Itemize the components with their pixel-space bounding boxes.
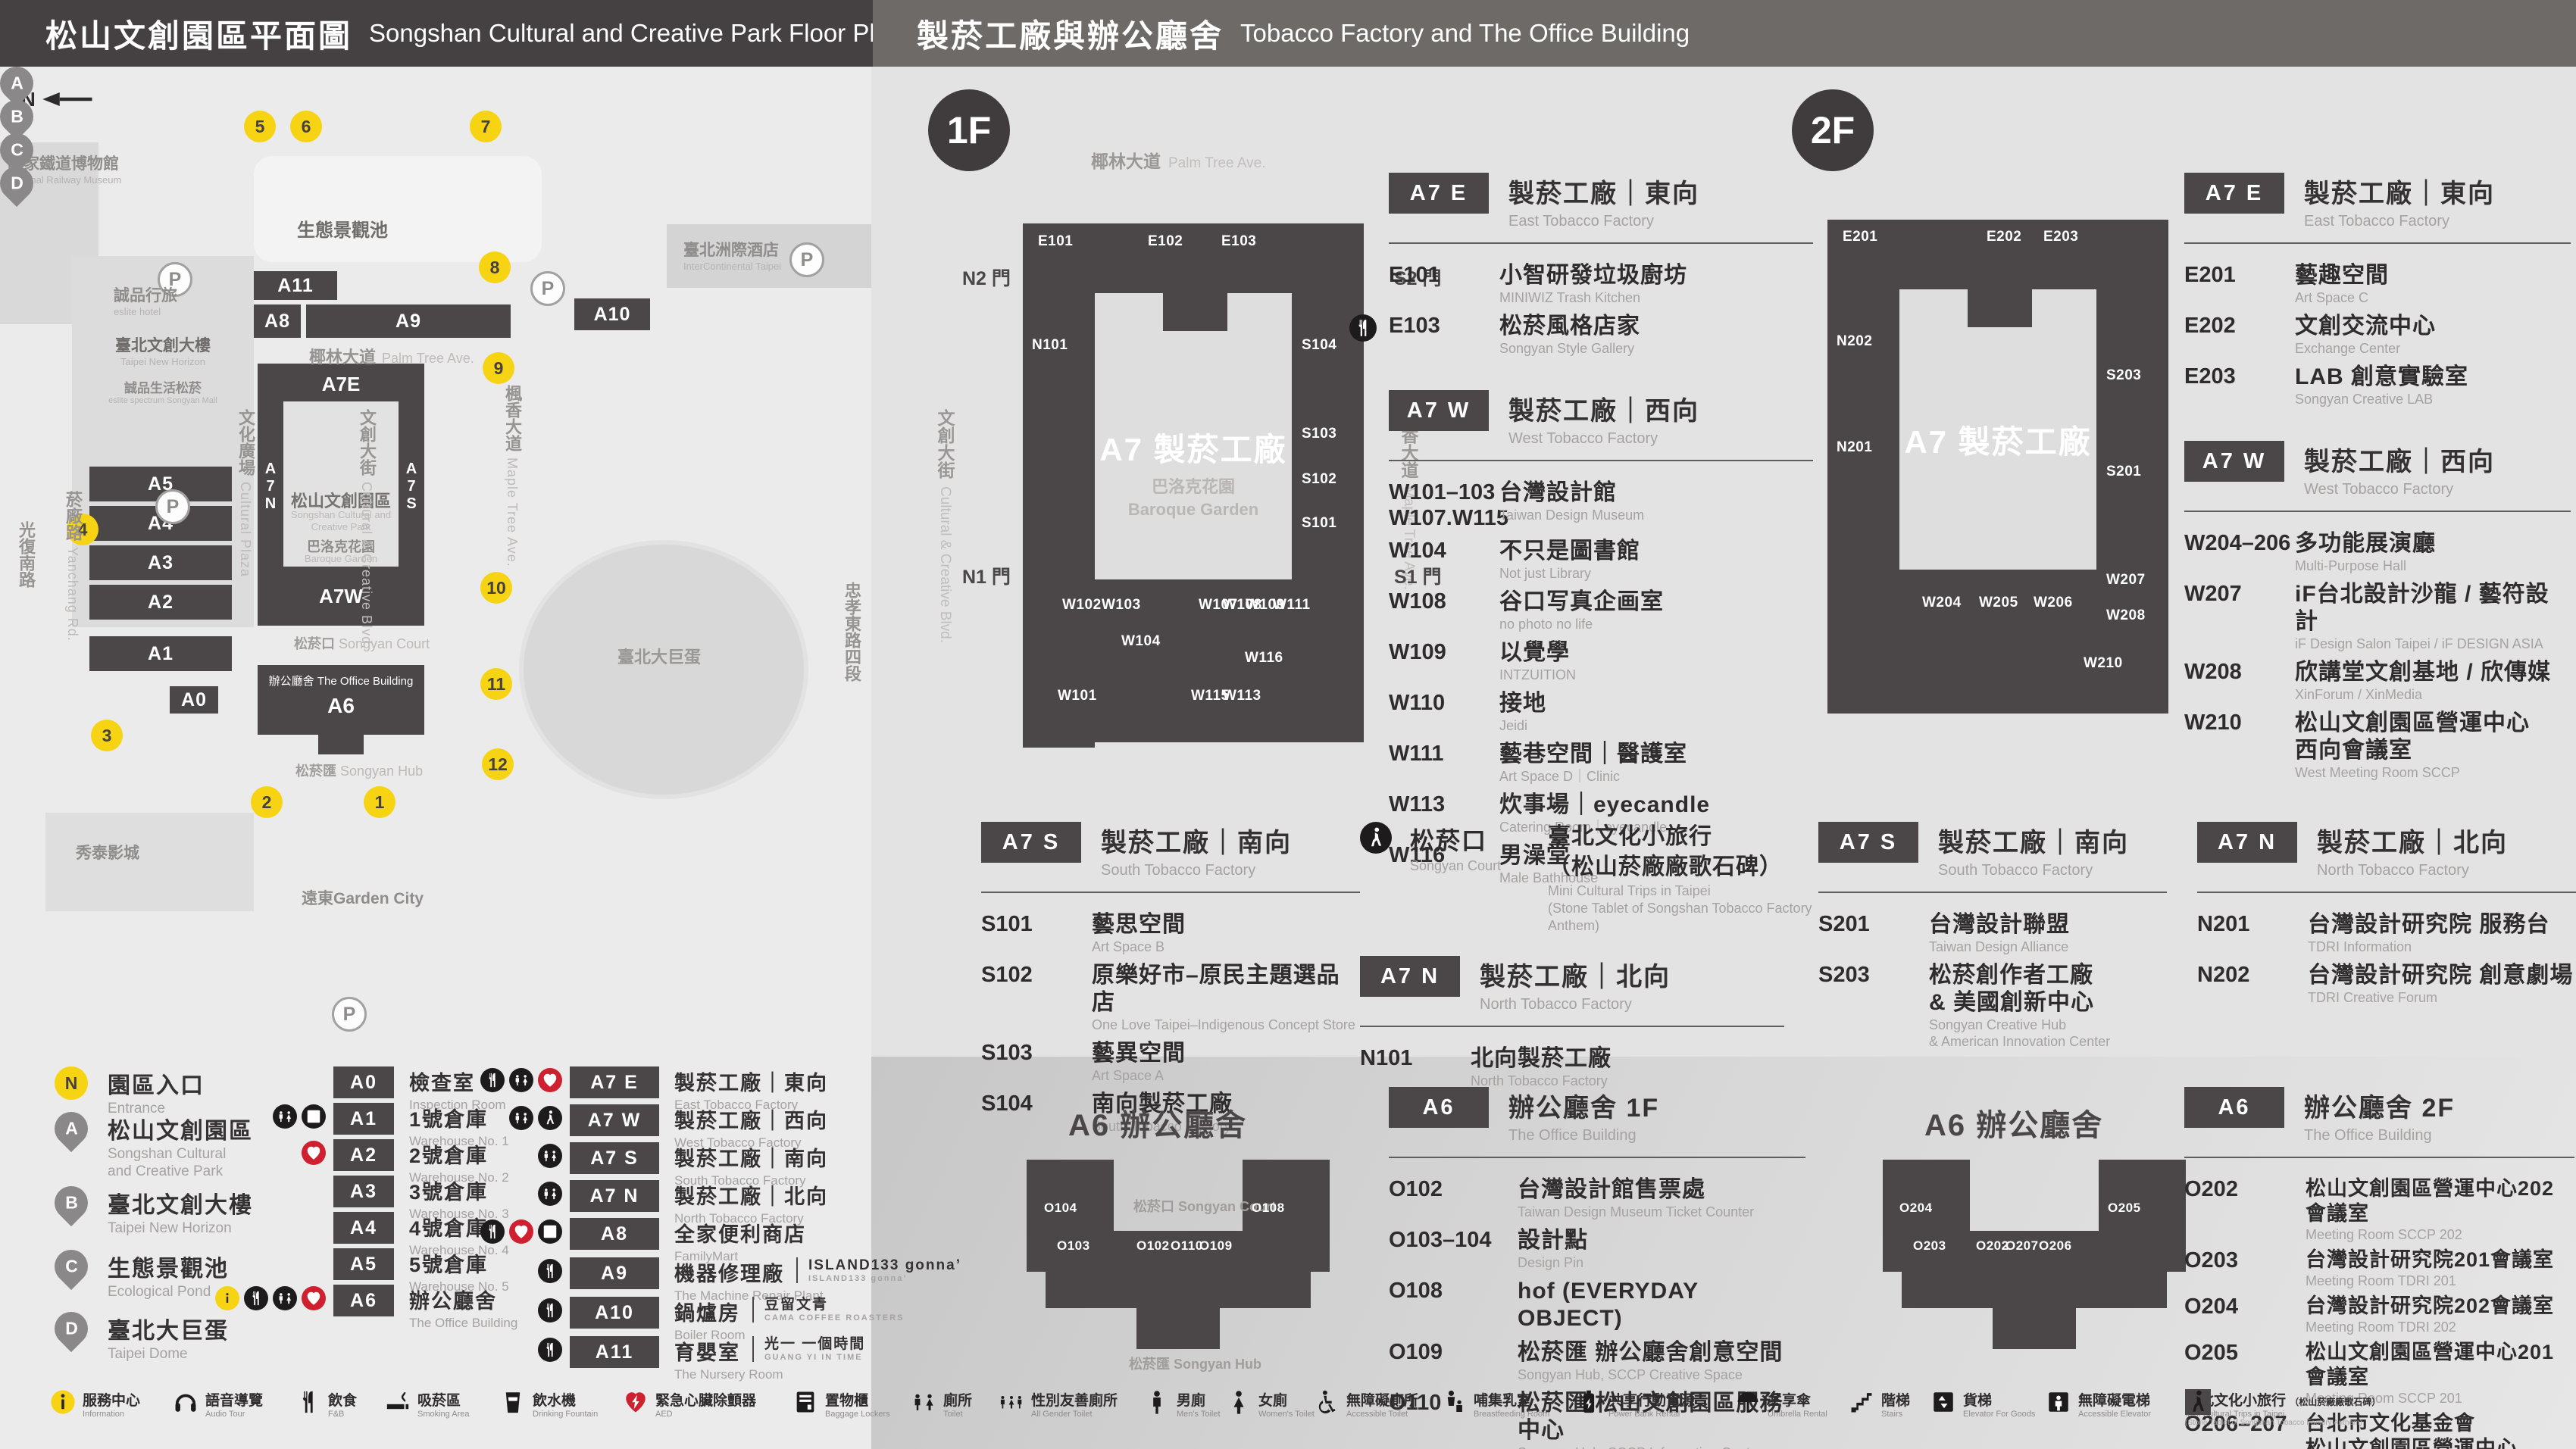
section-badge: A7 E bbox=[2184, 173, 2284, 214]
room-label: E101 bbox=[1038, 233, 1073, 250]
room-label: O109 bbox=[1199, 1238, 1233, 1254]
trip-icon bbox=[2185, 1389, 2211, 1415]
facility-legend-item: 吸菸區 Smoking Area bbox=[385, 1389, 469, 1419]
room-label: O108 bbox=[1252, 1201, 1285, 1216]
room-list-item: O204 台灣設計研究院202會議室 Meeting Room TDRI 202 bbox=[2184, 1294, 2574, 1335]
room-list-item: E101 小智研發垃圾廚坊 MINIWIZ Trash Kitchen bbox=[1389, 262, 1813, 306]
fnb-icon bbox=[480, 1068, 505, 1092]
room-label: W205 bbox=[1979, 595, 2018, 611]
section-a7e-2f: A7 E 製菸工廠｜東向East Tobacco Factory E201 藝趣… bbox=[2184, 173, 2571, 408]
room-label: O110 bbox=[1171, 1238, 1203, 1254]
room-label: E203 bbox=[2043, 229, 2078, 245]
map-building-block: A1 bbox=[89, 636, 232, 671]
left-header-title-en: Songshan Cultural and Creative Park Floo… bbox=[369, 19, 902, 48]
list-column-2f: A7 E 製菸工廠｜東向East Tobacco Factory E201 藝趣… bbox=[2184, 173, 2571, 814]
road-label: 文化廣場Cultural Plaza bbox=[233, 409, 258, 577]
taipei-dome-label: 臺北大巨蛋 bbox=[576, 644, 742, 668]
room-label: W208 bbox=[2106, 607, 2146, 624]
taipei-dome-shape bbox=[519, 540, 808, 799]
new-horizon-label: 臺北文創大樓 Taipei New Horizon bbox=[91, 333, 235, 367]
map-building-block: A8 bbox=[254, 304, 301, 338]
eslite-mall-label: 誠品生活松菸 eslite spectrum Songyan Mall bbox=[91, 377, 235, 405]
accessible-icon bbox=[1314, 1389, 1340, 1415]
plan1f-road-left: 文創大街Cultural & Creative Blvd. bbox=[932, 409, 958, 643]
umbrella-icon bbox=[1735, 1389, 1761, 1415]
room-label: O203 bbox=[1913, 1238, 1946, 1254]
section-a7e-1f: A7 E 製菸工廠｜東向East Tobacco Factory E101 小智… bbox=[1389, 173, 1813, 357]
room-label: O104 bbox=[1044, 1201, 1077, 1216]
office-building-1f-plan: A6 辦公廳舍 松菸口 Songyan Court 松菸匯 Songyan Hu… bbox=[985, 1087, 1371, 1367]
facility-legend-item: 性別友善廁所 All Gender Toilet bbox=[999, 1389, 1118, 1419]
legend-place-row: D 臺北大巨蛋Taipei Dome bbox=[55, 1312, 229, 1363]
facility-legend-item: 哺集乳室 Breastfeeding Room bbox=[1441, 1389, 1549, 1419]
tobacco-factory-1f-plan: 椰林大道Palm Tree Ave. 文創大街Cultural & Creati… bbox=[1023, 182, 1364, 780]
entrance-gate-marker: 9 bbox=[483, 352, 514, 384]
room-list-item: E203 LAB 創意實驗室Songyan Creative LAB bbox=[2184, 364, 2571, 408]
map-building-block: A2 bbox=[89, 585, 232, 620]
legend-badge: A5 bbox=[333, 1248, 394, 1280]
pond-label: 生態景觀池 bbox=[267, 215, 418, 242]
left-header-title-zh: 松山文創園區平面圖 bbox=[45, 11, 352, 57]
list-column-1f: A7 E 製菸工廠｜東向East Tobacco Factory E101 小智… bbox=[1389, 173, 1813, 920]
room-label: O206 bbox=[2039, 1238, 2072, 1254]
room-label: W210 bbox=[2084, 655, 2123, 672]
locker-icon bbox=[792, 1389, 818, 1415]
room-list-item: W111 藝巷空間｜醫護室 Art Space D｜Clinic bbox=[1389, 741, 1813, 785]
room-list-item: O202 松山文創園區營運中心202會議室 Meeting Room SCCP … bbox=[2184, 1176, 2574, 1243]
goods-elevator-icon bbox=[538, 1219, 562, 1244]
room-label: W103 bbox=[1102, 597, 1141, 614]
trip-icon bbox=[538, 1106, 562, 1130]
room-list-item: W210 松山文創園區營運中心西向會議室 West Meeting Room S… bbox=[2184, 710, 2571, 781]
aed-icon bbox=[623, 1389, 649, 1415]
map-park-name-en: Songshan Cultural and Creative Park bbox=[267, 509, 415, 533]
floor-1f-badge: 1F bbox=[928, 89, 1010, 171]
partner-brand: 光一 一個時間GUANG YI IN TIME bbox=[752, 1336, 865, 1362]
landmark-label: 臺北洲際酒店InterContinental Taipei bbox=[683, 238, 781, 272]
room-label: O202 bbox=[1976, 1238, 2009, 1254]
room-list-item: O102 台灣設計館售票處Taiwan Design Museum Ticket… bbox=[1389, 1176, 1805, 1220]
legend-place-symbol: N bbox=[55, 1066, 88, 1100]
aed-icon bbox=[509, 1219, 533, 1244]
room-label: E103 bbox=[1221, 233, 1256, 250]
audio-icon bbox=[173, 1389, 199, 1415]
facility-legend-item: 共享行動電源 Power Bank Rental bbox=[1576, 1389, 1695, 1419]
toilet-icon bbox=[273, 1286, 297, 1310]
legend-badge: A7 W bbox=[570, 1104, 659, 1136]
room-label: N201 bbox=[1837, 439, 1872, 456]
right-header-title-zh: 製菸工廠與辦公廳舍 bbox=[917, 11, 1224, 57]
powerbank-icon bbox=[1576, 1389, 1602, 1415]
a6-stem-shape bbox=[318, 735, 364, 754]
room-list-item: S103 藝異空間Art Space A bbox=[981, 1040, 1360, 1084]
entrance-gate-marker: 3 bbox=[91, 720, 123, 751]
facility-legend-item: 無障礙電梯 Accessible Elevator bbox=[2046, 1389, 2151, 1419]
room-list-item: N202 台灣設計研究院 創意劇場TDRI Creative Forum bbox=[2197, 962, 2576, 1006]
road-label: 文創大街Cultural & Creative Blvd. bbox=[355, 409, 379, 649]
section-badge: A6 bbox=[1389, 1087, 1489, 1128]
room-label: E102 bbox=[1148, 233, 1183, 250]
section-badge: A7 N bbox=[1360, 956, 1460, 997]
tobacco-factory-2f-plan: A7 製菸工廠 E201E202E203N202N201S203S201W204… bbox=[1827, 182, 2168, 742]
goods-elevator-icon bbox=[1930, 1389, 1956, 1415]
info-icon bbox=[215, 1286, 239, 1310]
room-list-item: O109 松菸匯 辦公廳舍創意空間Songyan Hub, SCCP Creat… bbox=[1389, 1339, 1805, 1383]
map-building-block: A11 bbox=[254, 271, 337, 300]
parking-icon: P bbox=[789, 242, 824, 277]
room-label: N101 bbox=[1032, 337, 1068, 354]
entrance-gate-marker: 2 bbox=[251, 786, 283, 818]
section-a7n-1f: A7 N 製菸工廠｜北向North Tobacco Factory N101 北… bbox=[1360, 956, 1784, 1096]
facility-legend-item: 女廁 Women's Toilet bbox=[1226, 1389, 1315, 1419]
water-icon bbox=[500, 1389, 526, 1415]
toilet-icon bbox=[273, 1104, 297, 1129]
road-label: 光復南路 bbox=[14, 521, 38, 588]
stairs-icon bbox=[1849, 1389, 1874, 1415]
entrance-gate-marker: 7 bbox=[470, 111, 502, 142]
legend-badge: A1 bbox=[333, 1103, 394, 1135]
room-list-item: W110 接地 Jeidi bbox=[1389, 690, 1813, 734]
legend-badge: A8 bbox=[570, 1218, 659, 1250]
right-header: 製菸工廠與辦公廳舍 Tobacco Factory and The Office… bbox=[873, 0, 2576, 67]
room-label: W204 bbox=[1922, 595, 1962, 611]
map-a6-office-label: 辦公廳舍 The Office Building bbox=[258, 673, 424, 689]
entrance-gate-marker: 6 bbox=[290, 111, 322, 142]
ecological-pond bbox=[254, 156, 542, 262]
map-building-block: A0 bbox=[170, 686, 218, 714]
landmark-label: 遠東Garden City bbox=[302, 886, 424, 909]
office-building-2f-plan: A6 辦公廳舍 O204O203O202O207O206O205 bbox=[1852, 1087, 2216, 1367]
section-badge: A7 W bbox=[1389, 390, 1489, 431]
entrance-gate-marker: 8 bbox=[479, 251, 511, 283]
entrance-gate-marker: 10 bbox=[480, 572, 512, 604]
legend-badge: A4 bbox=[333, 1212, 394, 1244]
room-label: S102 bbox=[1302, 471, 1336, 488]
parking-icon: P bbox=[530, 271, 565, 306]
toilet-icon bbox=[538, 1182, 562, 1206]
floor-plan-poster: 松山文創園區平面圖 Songshan Cultural and Creative… bbox=[0, 0, 2576, 1449]
goods-elevator-icon bbox=[302, 1104, 326, 1129]
legend-place-row: C 生態景觀池Ecological Pond bbox=[55, 1250, 229, 1301]
landmark-label: 秀泰影城 bbox=[76, 841, 139, 863]
legend-place-symbol: D bbox=[48, 1305, 95, 1352]
left-header: 松山文創園區平面圖 Songshan Cultural and Creative… bbox=[0, 0, 907, 67]
room-list-item: S201 台灣設計聯盟 Taiwan Design Alliance bbox=[1818, 911, 2167, 955]
room-label: O207 bbox=[2005, 1238, 2039, 1254]
room-list-item: W101–103W107.W115 台灣設計館 Taiwan Design Mu… bbox=[1389, 479, 1813, 531]
map-garden-en: Baroque Garden bbox=[267, 553, 415, 564]
section-badge: A7 S bbox=[981, 822, 1081, 863]
facility-legend-item: 貨梯 Elevator For Goods bbox=[1930, 1389, 2035, 1419]
entrance-gate-marker: 1 bbox=[364, 786, 395, 818]
room-list-item: N201 台灣設計研究院 服務台TDRI Information bbox=[2197, 911, 2576, 955]
men-icon bbox=[1144, 1389, 1170, 1415]
map-a7w-label: A7W bbox=[258, 585, 424, 608]
map-hub-label: 松菸匯 Songyan Hub bbox=[295, 760, 423, 780]
allgender-icon bbox=[999, 1389, 1024, 1415]
section-badge: A7 N bbox=[2197, 822, 2297, 863]
aed-icon bbox=[538, 1068, 562, 1092]
section-badge: A6 bbox=[2184, 1087, 2284, 1128]
room-label: W101 bbox=[1058, 688, 1097, 704]
plan1f-center-label: A7 製菸工廠 bbox=[1095, 424, 1292, 470]
parking-icon: P bbox=[155, 489, 190, 524]
room-label: O205 bbox=[2108, 1201, 2141, 1216]
aed-icon bbox=[302, 1286, 326, 1310]
map-a6-label: A6 bbox=[258, 694, 424, 718]
toilet-icon bbox=[538, 1144, 562, 1168]
room-list-item: S102 原樂好市–原民主題選品店One Love Taipei–Indigen… bbox=[981, 962, 1360, 1033]
legend-badge: A7 S bbox=[570, 1142, 659, 1174]
a6-1f-plan-title: A6 辦公廳舍 bbox=[1068, 1101, 1247, 1145]
facility-legend-item: 緊急心臟除顫器 AED bbox=[623, 1389, 756, 1419]
legend-badge: A2 bbox=[333, 1139, 394, 1171]
legend-badge: A10 bbox=[570, 1297, 659, 1329]
room-label: O102 bbox=[1136, 1238, 1170, 1254]
fnb-icon bbox=[538, 1298, 562, 1323]
facility-legend-item: 廁所 Toilet bbox=[911, 1389, 972, 1419]
facility-legend-item: 臺北文化小旅行 （松山菸廠廠歌石碑） Mini Cultural Trips i… bbox=[2185, 1389, 2381, 1427]
partner-brand: ISLAND133 gonna’ISLAND133 gonna’ bbox=[796, 1257, 961, 1283]
partner-brand: 豆留文青CAMA COFFEE ROASTERS bbox=[752, 1297, 904, 1323]
legend-badge: A3 bbox=[333, 1176, 394, 1207]
section-a7n-2f: A7 N 製菸工廠｜北向North Tobacco Factory N201 台… bbox=[2197, 822, 2576, 1013]
legend-badge: A9 bbox=[570, 1257, 659, 1289]
room-list-item: S203 松菸創作者工廠& 美國創新中心 Songyan Creative Hu… bbox=[1818, 962, 2167, 1050]
facility-legend-item: 階梯 Stairs bbox=[1849, 1389, 1910, 1419]
room-label: W113 bbox=[1223, 688, 1261, 704]
toilet-icon bbox=[509, 1106, 533, 1130]
room-label: E201 bbox=[1843, 229, 1877, 245]
room-label: S203 bbox=[2106, 367, 2141, 384]
map-building-block: A10 bbox=[574, 298, 650, 330]
legend-place-symbol: A bbox=[48, 1105, 95, 1152]
facility-legend-item: 男廁 Men's Toilet bbox=[1144, 1389, 1221, 1419]
facility-legend-item: 服務中心 Information bbox=[50, 1389, 140, 1419]
section-badge: A7 S bbox=[1818, 822, 1918, 863]
legend-badge: A6 bbox=[333, 1285, 394, 1316]
room-list-item: E103 松菸風格店家 Songyan Style Gallery bbox=[1389, 313, 1813, 357]
room-list-item: W204–206 多功能展演廳 Multi-Purpose Hall bbox=[2184, 530, 2571, 574]
map-building-block: A9 bbox=[306, 304, 511, 338]
map-a7e-label: A7E bbox=[258, 373, 424, 396]
parking-icon: P bbox=[332, 997, 367, 1032]
aed-icon bbox=[302, 1141, 326, 1165]
smoking-icon bbox=[385, 1389, 411, 1415]
room-list-item: W208 欣講堂文創基地 / 欣傳媒 XinForum / XinMedia bbox=[2184, 659, 2571, 703]
legend-badge: A0 bbox=[333, 1066, 394, 1098]
park-map: N 臺北大巨蛋 生態景觀池 A7E A 7 N A 7 S A7W 松山文創園區… bbox=[0, 67, 871, 1057]
nursing-icon bbox=[1441, 1389, 1467, 1415]
facility-legend-item: 共享傘 Umbrella Rental bbox=[1735, 1389, 1827, 1419]
legend-badge: A7 N bbox=[570, 1180, 659, 1212]
legend-badge: A7 E bbox=[570, 1066, 659, 1098]
section-badge: A7 E bbox=[1389, 173, 1489, 214]
room-label: N202 bbox=[1837, 333, 1872, 350]
room-list-item: W109 以覺學 INTZUITION bbox=[1389, 639, 1813, 683]
fnb-icon bbox=[538, 1259, 562, 1283]
fnb-icon bbox=[538, 1338, 562, 1362]
legend-place-row: A 松山文創園區Songshan Cultural and Creative P… bbox=[55, 1112, 253, 1180]
room-label: W206 bbox=[2034, 595, 2073, 611]
legend-place-row: B 臺北文創大樓Taipei New Horizon bbox=[55, 1186, 253, 1237]
room-list-item: W207 iF台北設計沙龍 / 藝符設計 iF Design Salon Tai… bbox=[2184, 581, 2571, 652]
room-list-item: S101 藝思空間Art Space B bbox=[981, 911, 1360, 955]
plan1f-north-wing bbox=[1023, 223, 1364, 293]
room-list-item: E202 文創交流中心Exchange Center bbox=[2184, 313, 2571, 357]
facility-legend-item: 飲食 F&B bbox=[295, 1389, 357, 1419]
women-icon bbox=[1226, 1389, 1252, 1415]
plan-gate-label: N2 門 bbox=[941, 264, 1011, 291]
legend-place-symbol: C bbox=[48, 1243, 95, 1290]
toilet-icon bbox=[911, 1389, 936, 1415]
legend-place-row: N 園區入口Entrance bbox=[55, 1066, 205, 1117]
plan-gate-label: N1 門 bbox=[941, 562, 1011, 589]
fnb-icon bbox=[480, 1219, 505, 1244]
legend-building-row: A11 育嬰室 光一 一個時間GUANG YI IN TIME The Nurs… bbox=[570, 1336, 865, 1382]
plan2f-center-label: A7 製菸工廠 bbox=[1899, 417, 2096, 463]
room-label: O103 bbox=[1057, 1238, 1090, 1254]
road-label: 椰林大道Palm Tree Ave. bbox=[309, 344, 474, 368]
right-header-title-en: Tobacco Factory and The Office Building bbox=[1240, 19, 1690, 48]
room-list-item: N101 北向製菸工廠North Tobacco Factory bbox=[1360, 1045, 1784, 1089]
landmark-label: 誠品行旅eslite hotel bbox=[114, 283, 177, 317]
room-list-item: W104 不只是圖書館 Not just Library bbox=[1389, 538, 1813, 582]
floor-2f-badge: 2F bbox=[1792, 89, 1874, 171]
fnb-icon bbox=[295, 1389, 321, 1415]
room-list-item: W108 谷口写真企画室 no photo no life bbox=[1389, 589, 1813, 632]
facility-legend-item: 置物櫃 Baggage Lockers bbox=[792, 1389, 890, 1419]
room-label: W111 bbox=[1273, 597, 1311, 614]
section-a7w-1f: A7 W 製菸工廠｜西向West Tobacco Factory W101–10… bbox=[1389, 390, 1813, 886]
room-label: W102 bbox=[1062, 597, 1102, 614]
facility-legend-item: 飲水機 Drinking Fountain bbox=[500, 1389, 598, 1419]
facility-legend-item: 語音導覽 Audio Tour bbox=[173, 1389, 263, 1419]
room-list-item: O103–104 設計點Design Pin bbox=[1389, 1227, 1805, 1271]
room-label: O204 bbox=[1899, 1201, 1933, 1216]
songyan-court-entry: 松菸口 Songyan Court 臺北文化小旅行 （松山菸廠廠歌石碑） Min… bbox=[1360, 822, 1815, 935]
section-a7s-2f: A7 S 製菸工廠｜南向South Tobacco Factory S201 台… bbox=[1818, 822, 2167, 1057]
road-label: 楓香大道Maple Tree Ave. bbox=[500, 385, 524, 567]
legend-badge: A11 bbox=[570, 1336, 659, 1368]
room-label: S201 bbox=[2106, 464, 2141, 480]
legend-place-symbol: B bbox=[48, 1179, 95, 1226]
accessible-elevator-icon bbox=[2046, 1389, 2071, 1415]
a6-2f-plan-title: A6 辦公廳舍 bbox=[1924, 1101, 2103, 1145]
room-list-item: O108 hof (EVERYDAY OBJECT) bbox=[1389, 1278, 1805, 1332]
plan1f-road-top: 椰林大道Palm Tree Ave. bbox=[1091, 147, 1266, 173]
compass-north: N bbox=[21, 88, 95, 111]
entrance-gate-marker: 5 bbox=[244, 111, 276, 142]
entrance-gate-marker: 12 bbox=[482, 748, 514, 780]
toilet-icon bbox=[509, 1068, 533, 1092]
section-a7w-2f: A7 W 製菸工廠｜西向West Tobacco Factory W204–20… bbox=[2184, 441, 2571, 781]
room-label: W116 bbox=[1245, 650, 1283, 667]
road-label: 忠孝東路四段 bbox=[839, 582, 864, 682]
road-label: 菸廠路Yanchang Rd. bbox=[61, 491, 85, 642]
room-label: W104 bbox=[1121, 633, 1161, 650]
room-list-item: O203 台灣設計研究院201會議室 Meeting Room TDRI 201 bbox=[2184, 1248, 2574, 1289]
room-label: S104 bbox=[1302, 337, 1336, 354]
room-label: E202 bbox=[1987, 229, 2021, 245]
room-list-item: E201 藝趣空間Art Space C bbox=[2184, 262, 2571, 306]
facility-legend-item: 無障礙廁所 Accessible Toilet bbox=[1314, 1389, 1418, 1419]
map-building-block: A3 bbox=[89, 545, 232, 580]
entrance-gate-marker: 11 bbox=[480, 668, 512, 700]
legend-building-row: A6 辦公廳舍The Office Building bbox=[333, 1285, 517, 1331]
fnb-icon bbox=[1349, 314, 1377, 342]
info-icon bbox=[50, 1389, 76, 1415]
section-badge: A7 W bbox=[2184, 441, 2284, 482]
room-label: S103 bbox=[1302, 426, 1336, 442]
fnb-icon bbox=[244, 1286, 268, 1310]
